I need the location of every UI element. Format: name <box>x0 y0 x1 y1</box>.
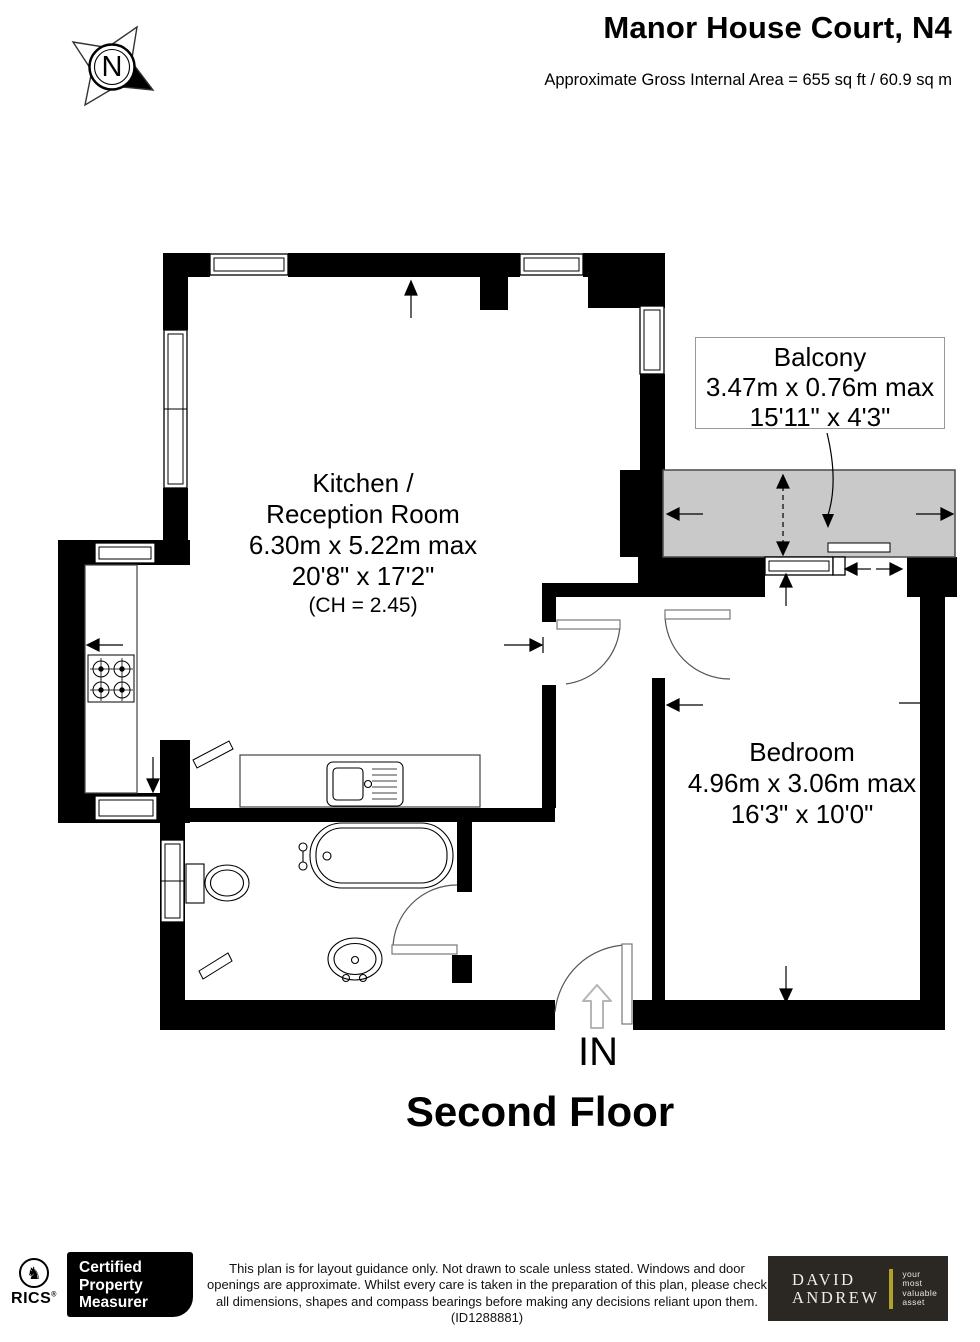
rics-logo: ♞ RICS® <box>8 1258 60 1308</box>
bedroom-arrow-up <box>780 574 792 606</box>
kitchen-name-line2: Reception Room <box>213 499 513 530</box>
kitchen-dims-metric: 6.30m x 5.22m max <box>213 530 513 561</box>
balcony-threshold <box>828 543 890 552</box>
rics-wordmark: RICS® <box>8 1290 60 1308</box>
floorplan-page: { "header": { "title": "Manor House Cour… <box>0 0 980 1342</box>
balcony-area <box>663 470 955 557</box>
agency-logo: DAVID ANDREW your most valuable asset <box>768 1256 948 1321</box>
bedroom-dims-metric: 4.96m x 3.06m max <box>652 768 952 799</box>
entrance-door <box>555 944 632 1024</box>
window-top-right <box>520 254 583 275</box>
bedroom-arrow-down <box>780 966 792 1002</box>
bathtub-icon <box>299 823 453 888</box>
disclaimer-text: This plan is for layout guidance only. N… <box>202 1261 772 1327</box>
agency-accent-bar <box>889 1269 893 1309</box>
rics-lion-icon: ♞ <box>19 1258 49 1288</box>
bathroom-door <box>392 885 457 954</box>
floorplan-drawing <box>0 0 980 1342</box>
agency-tagline: your most valuable asset <box>902 1270 937 1308</box>
bedroom-dims-imperial: 16'3" x 10'0" <box>652 799 952 830</box>
balcony-name: Balcony <box>696 342 944 372</box>
kitchen-name-line1: Kitchen / <box>213 468 513 499</box>
registered-mark: ® <box>51 1292 57 1299</box>
window-bay-bottom <box>95 796 157 820</box>
page-title: Manor House Court, N4 <box>603 10 952 46</box>
kitchen-label: Kitchen / Reception Room 6.30m x 5.22m m… <box>213 468 513 620</box>
gross-internal-area: Approximate Gross Internal Area = 655 sq… <box>544 71 952 90</box>
cpm-line2: Property <box>79 1277 193 1295</box>
kitchen-dims-imperial: 20'8" x 17'2" <box>213 561 513 592</box>
kitchen-ceiling-height: (CH = 2.45) <box>213 592 513 620</box>
window-bay-top <box>95 543 155 563</box>
compass-north-label: N <box>97 51 127 84</box>
cpm-line3: Measurer <box>79 1294 193 1312</box>
window-top-left <box>210 254 288 275</box>
balcony-dims-metric: 3.47m x 0.76m max <box>696 372 944 402</box>
balcony-label: Balcony 3.47m x 0.76m max 15'11" x 4'3" <box>695 337 945 429</box>
bedroom-name: Bedroom <box>652 737 952 768</box>
kitchen-arrow-up <box>405 281 417 318</box>
agency-name: DAVID ANDREW <box>792 1271 879 1307</box>
sliding-door-arrows <box>845 563 902 575</box>
balcony-dims-imperial: 15'11" x 4'3" <box>696 402 944 432</box>
bedroom-arrow-left <box>667 699 703 711</box>
kitchen-door <box>557 620 620 684</box>
cpm-line1: Certified <box>79 1259 193 1277</box>
entrance-arrow-icon <box>583 985 611 1028</box>
certified-property-measurer-badge: Certified Property Measurer <box>67 1252 193 1317</box>
basin-icon <box>328 938 382 982</box>
window-bedroom-balcony <box>765 557 845 575</box>
floor-title: Second Floor <box>370 1088 710 1136</box>
window-kitchen-west <box>164 330 187 488</box>
kitchen-arrow-down <box>147 757 159 792</box>
bedroom-door <box>665 610 730 679</box>
entrance-label: IN <box>560 1030 636 1075</box>
window-bathroom <box>161 840 184 922</box>
wall-pillar <box>480 277 508 310</box>
window-kitchen-east <box>640 306 664 374</box>
bedroom-label: Bedroom 4.96m x 3.06m max 16'3" x 10'0" <box>652 737 952 830</box>
cupboard-doors <box>193 741 233 979</box>
toilet-icon <box>186 864 249 903</box>
kitchen-arrow-right <box>504 637 543 653</box>
